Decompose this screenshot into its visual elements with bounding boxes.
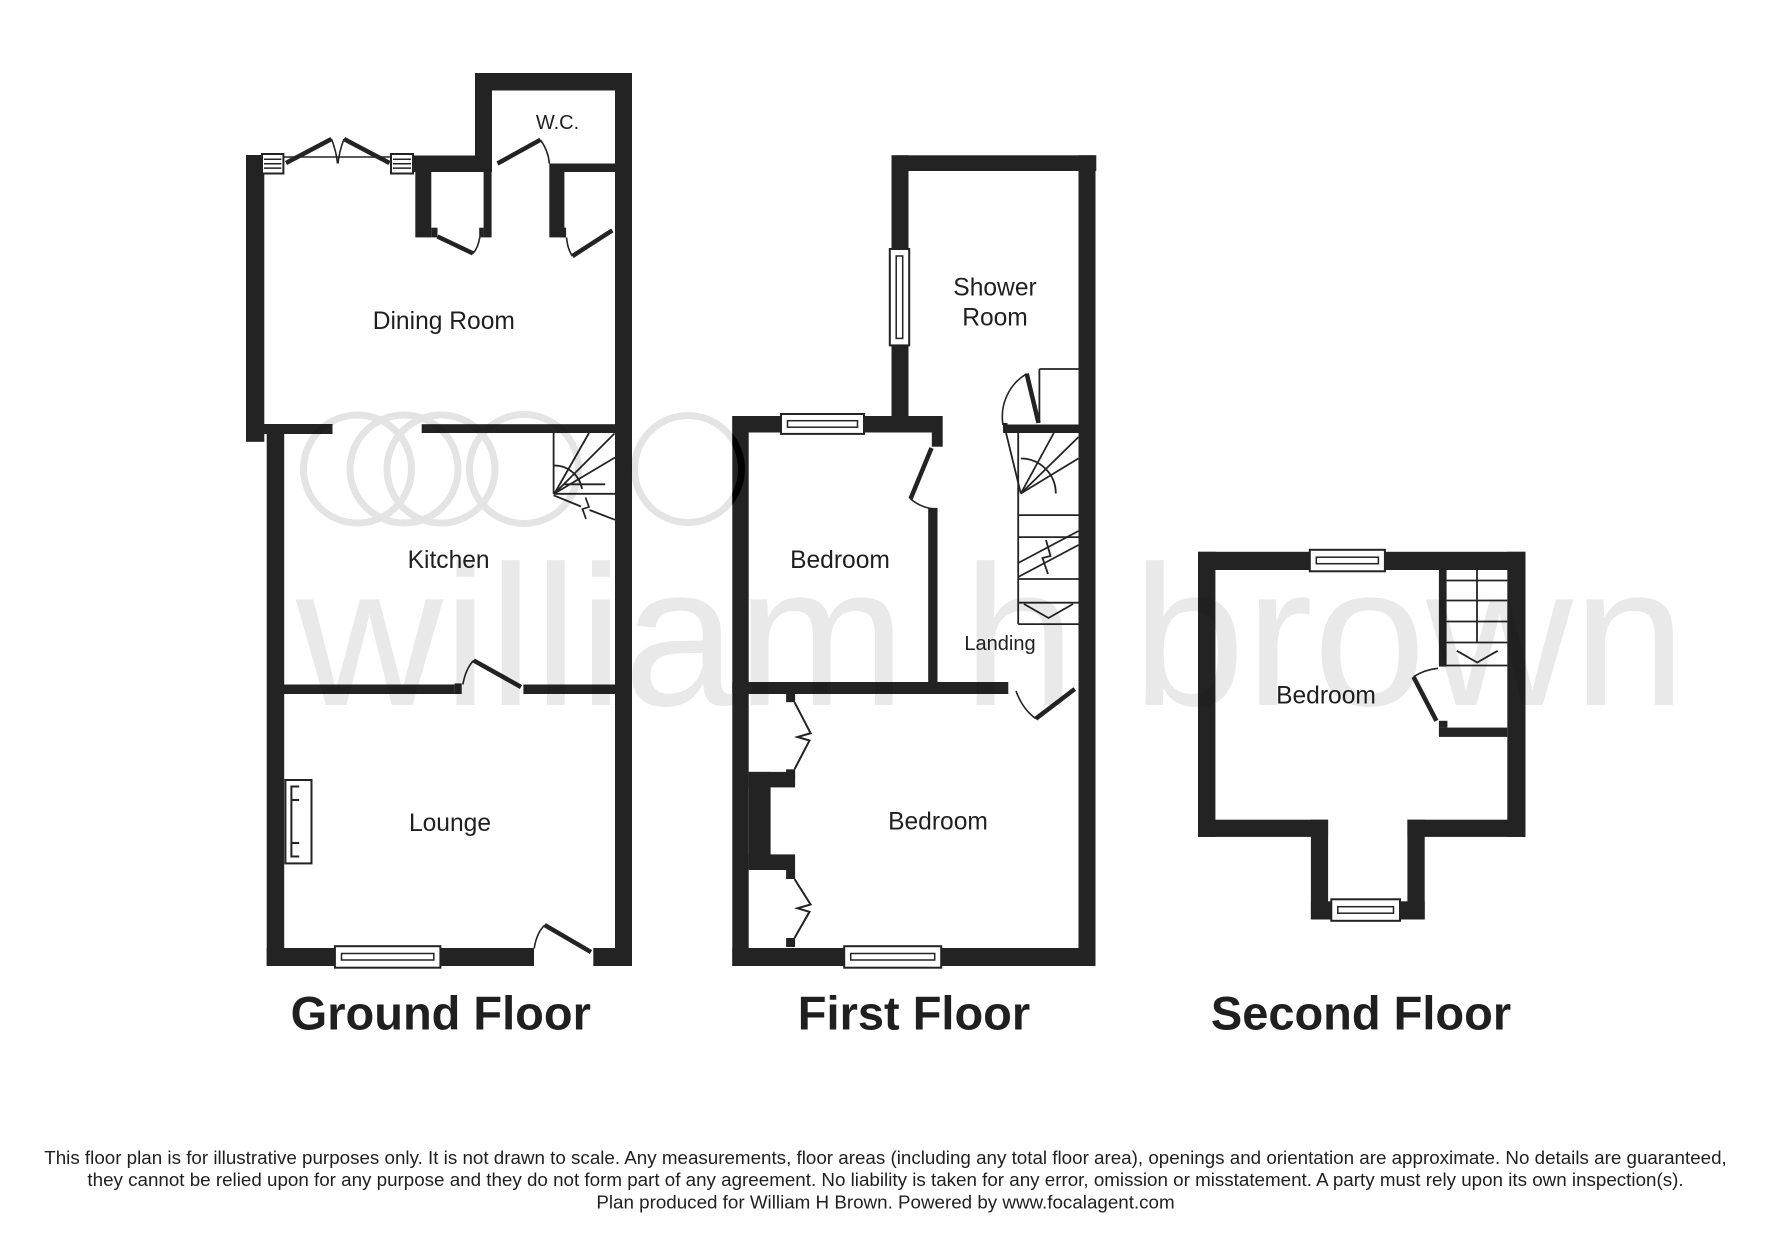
svg-text:This floor plan is for illustr: This floor plan is for illustrative purp… bbox=[44, 1147, 1727, 1168]
svg-text:W.C.: W.C. bbox=[536, 112, 579, 134]
svg-text:Second Floor: Second Floor bbox=[1211, 987, 1511, 1040]
svg-text:Bedroom: Bedroom bbox=[888, 809, 988, 836]
svg-text:they cannot be relied upon for: they cannot be relied upon for any purpo… bbox=[87, 1169, 1683, 1190]
svg-text:Plan produced for William H Br: Plan produced for William H Brown. Power… bbox=[596, 1192, 1174, 1213]
svg-text:Dining Room: Dining Room bbox=[373, 308, 515, 335]
svg-text:First Floor: First Floor bbox=[798, 987, 1030, 1040]
svg-text:Room: Room bbox=[962, 305, 1028, 332]
svg-text:william h brown: william h brown bbox=[295, 525, 1686, 748]
svg-text:Shower: Shower bbox=[953, 275, 1036, 302]
svg-text:Lounge: Lounge bbox=[409, 810, 491, 837]
svg-text:Ground Floor: Ground Floor bbox=[291, 987, 591, 1040]
